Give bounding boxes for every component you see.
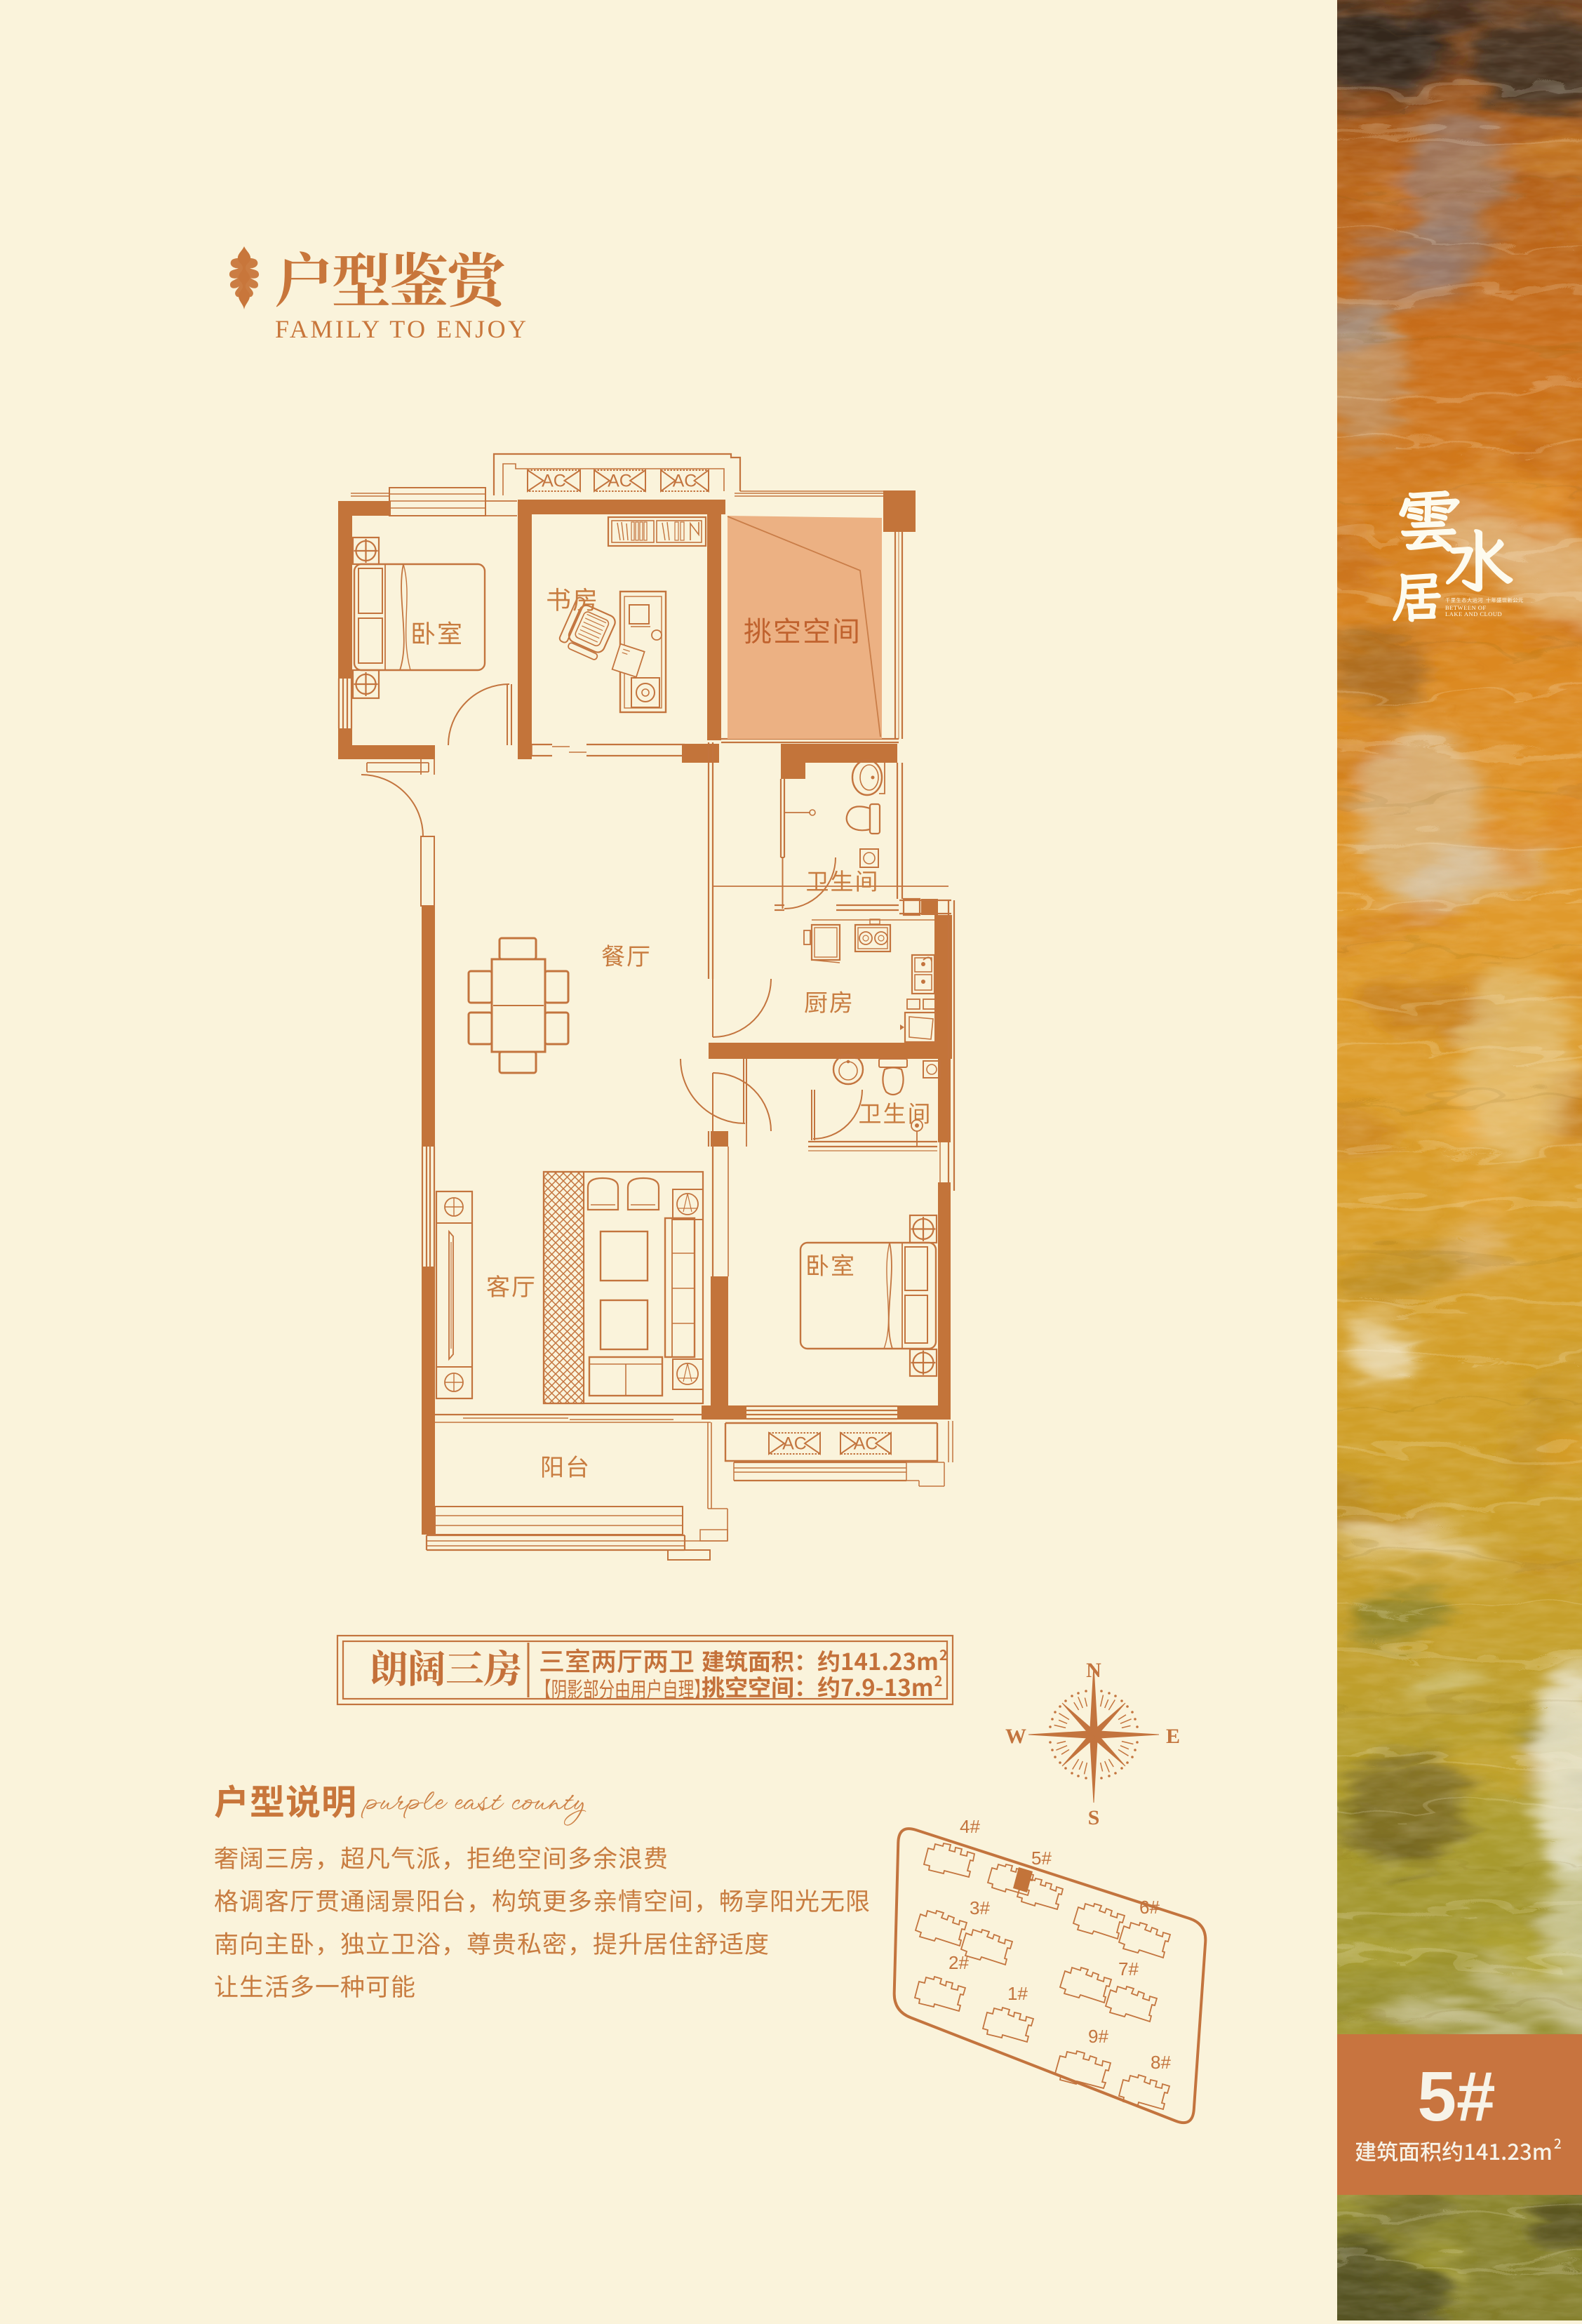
svg-text:E: E xyxy=(1166,1725,1180,1748)
svg-text:7#: 7# xyxy=(1118,1958,1139,1979)
svg-text:W: W xyxy=(1005,1725,1026,1748)
svg-text:5#: 5# xyxy=(1417,2057,1495,2136)
svg-text:5#: 5# xyxy=(1031,1848,1052,1869)
svg-text:AC: AC xyxy=(854,1434,878,1454)
svg-text:AC: AC xyxy=(542,472,566,491)
svg-text:9#: 9# xyxy=(1088,2026,1108,2047)
svg-text:1#: 1# xyxy=(1007,1983,1028,2004)
svg-text:N: N xyxy=(1086,1659,1101,1682)
svg-text:8#: 8# xyxy=(1151,2052,1171,2073)
svg-text:3#: 3# xyxy=(970,1897,990,1918)
svg-text:6#: 6# xyxy=(1139,1897,1160,1918)
svg-text:AC: AC xyxy=(673,472,697,491)
svg-text:S: S xyxy=(1088,1806,1100,1829)
svg-text:FAMILY TO ENJOY: FAMILY TO ENJOY xyxy=(275,315,529,343)
svg-text:4#: 4# xyxy=(960,1816,980,1837)
svg-text:AC: AC xyxy=(782,1434,807,1454)
svg-text:AC: AC xyxy=(608,472,632,491)
svg-text:2#: 2# xyxy=(948,1952,969,1973)
svg-text:LAKE AND CLOUD: LAKE AND CLOUD xyxy=(1445,610,1502,617)
